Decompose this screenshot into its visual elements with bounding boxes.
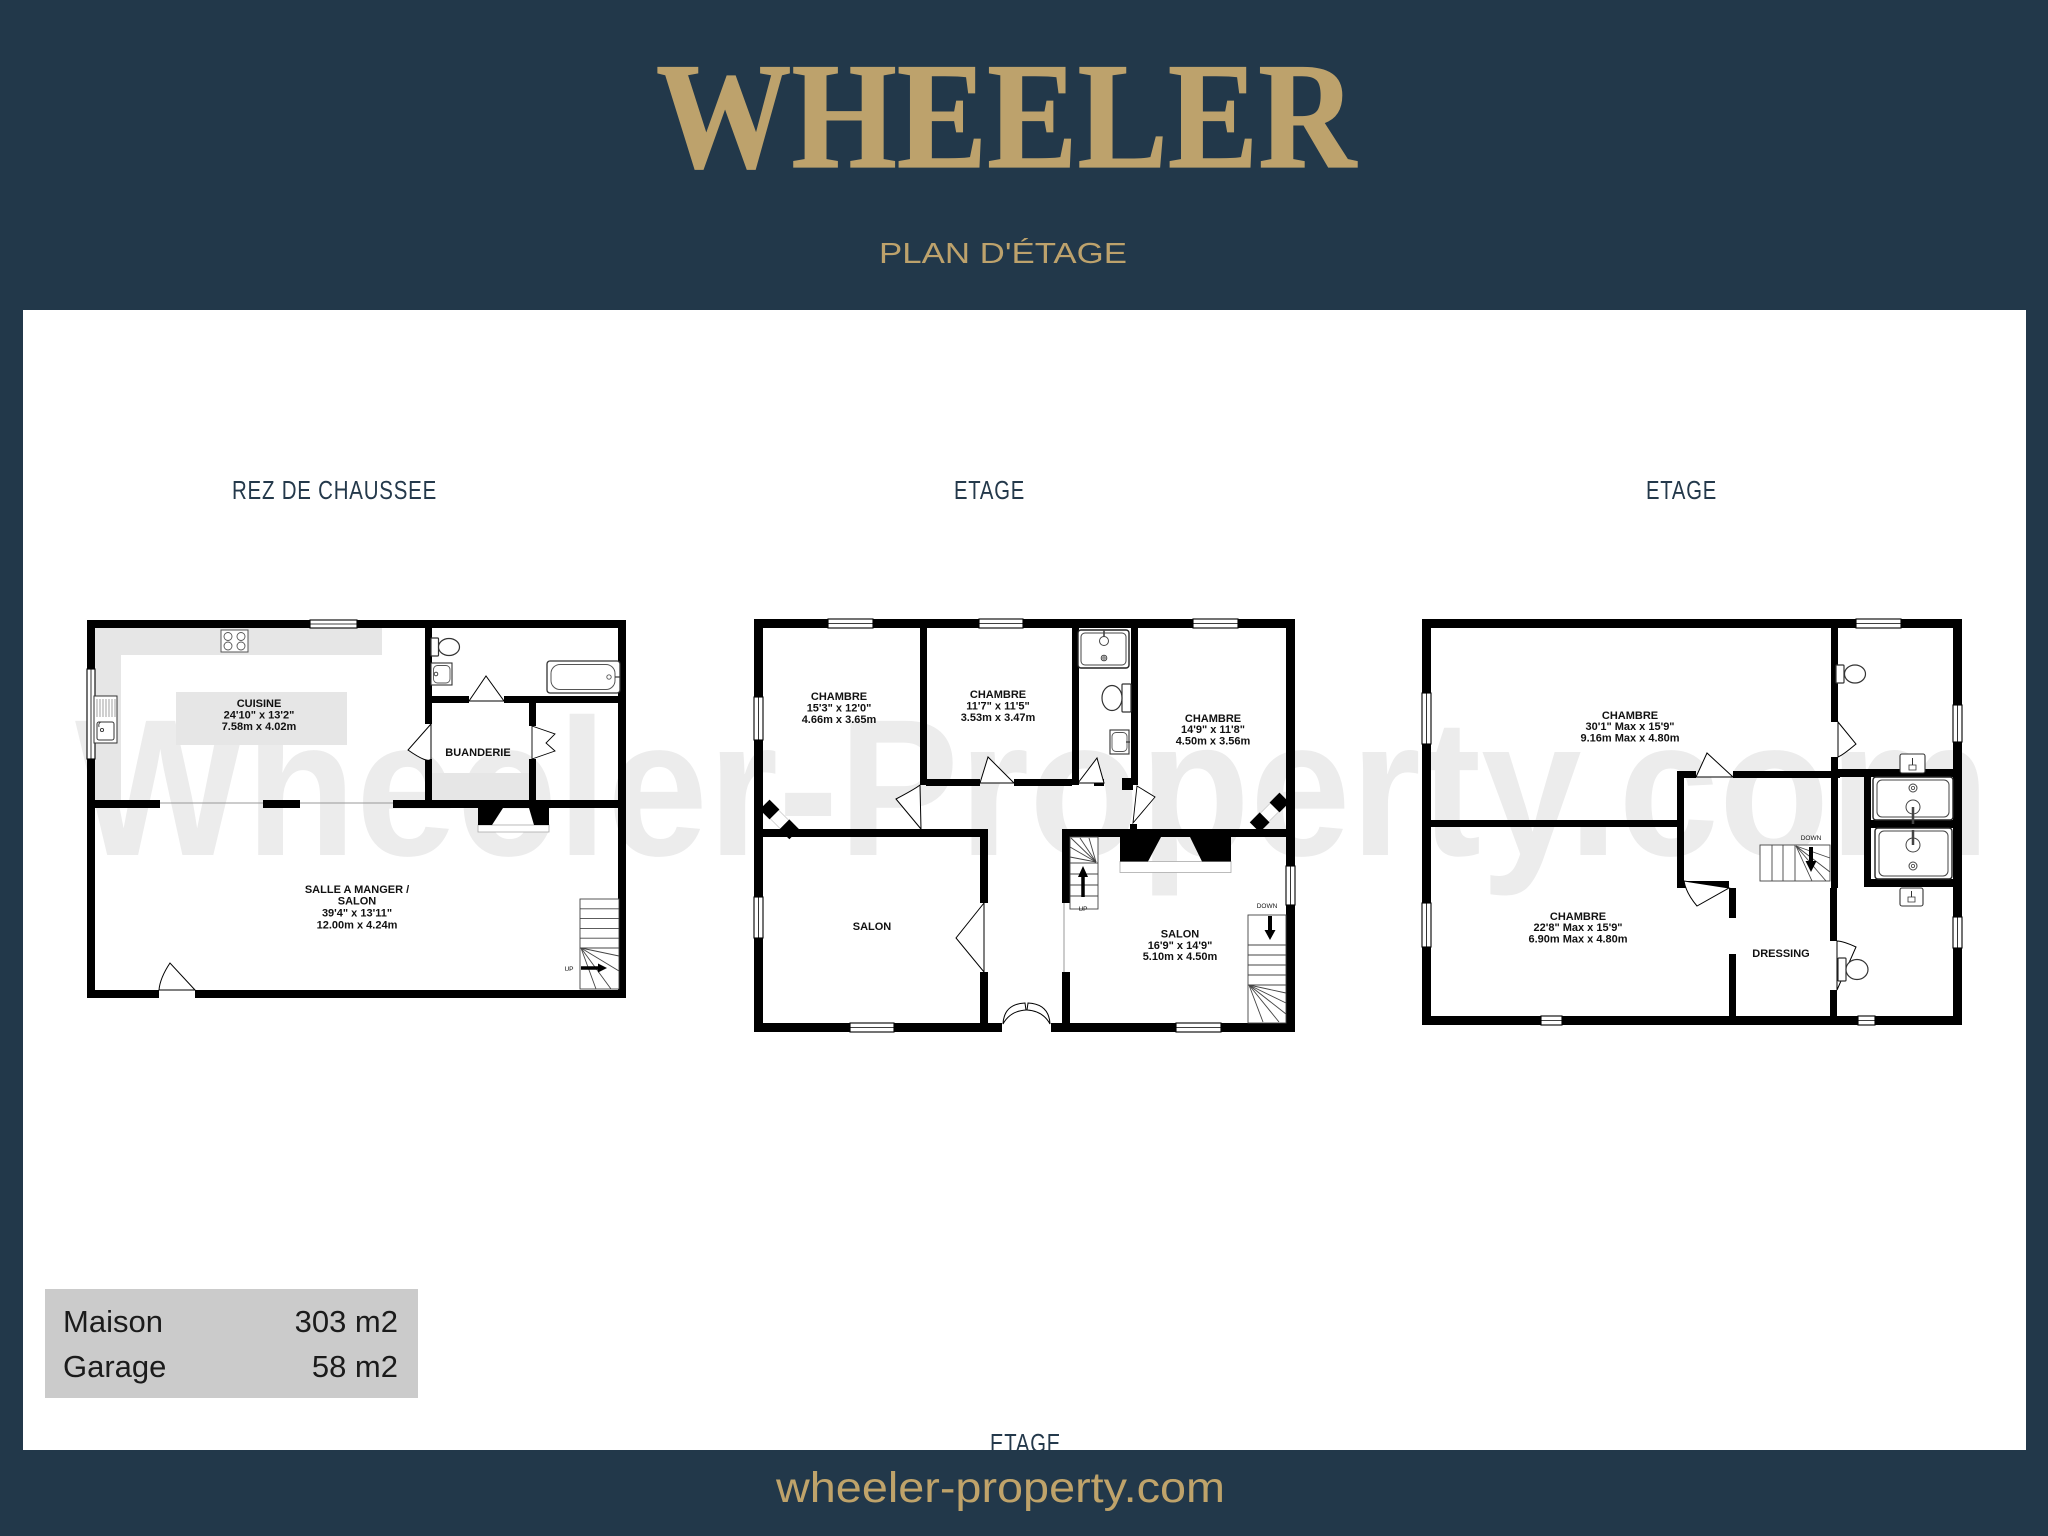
svg-text:24'10" x 13'2": 24'10" x 13'2"	[224, 710, 295, 722]
svg-text:7.58m x 4.02m: 7.58m x 4.02m	[222, 721, 297, 733]
svg-text:DRESSING: DRESSING	[1752, 948, 1809, 960]
svg-text:PLAN D'ÉTAGE: PLAN D'ÉTAGE	[879, 237, 1127, 270]
svg-text:15'3" x 12'0": 15'3" x 12'0"	[807, 703, 872, 715]
svg-text:ETAGE: ETAGE	[954, 475, 1025, 505]
svg-text:14'9" x 11'8": 14'9" x 11'8"	[1181, 724, 1245, 736]
svg-text:UP: UP	[564, 966, 573, 973]
svg-text:9.16m Max x 4.80m: 9.16m Max x 4.80m	[1580, 733, 1679, 745]
svg-text:SALON: SALON	[338, 896, 377, 908]
svg-text:58 m2: 58 m2	[312, 1349, 398, 1384]
svg-text:WHEELER: WHEELER	[656, 32, 1358, 200]
svg-text:BUANDERIE: BUANDERIE	[445, 747, 510, 759]
svg-text:22'8" Max x 15'9": 22'8" Max x 15'9"	[1533, 922, 1622, 934]
svg-text:SALLE A MANGER /: SALLE A MANGER /	[305, 884, 409, 896]
svg-text:DOWN: DOWN	[1801, 835, 1822, 842]
svg-text:12.00m x 4.24m: 12.00m x 4.24m	[317, 920, 398, 932]
svg-text:3.53m x 3.47m: 3.53m x 3.47m	[961, 712, 1036, 724]
svg-text:39'4" x 13'11": 39'4" x 13'11"	[322, 908, 392, 920]
svg-text:DOWN: DOWN	[1257, 903, 1278, 910]
svg-text:Maison: Maison	[63, 1304, 163, 1339]
svg-text:CHAMBRE: CHAMBRE	[970, 689, 1026, 701]
svg-text:SALON: SALON	[1161, 929, 1200, 941]
svg-text:5.10m x 4.50m: 5.10m x 4.50m	[1143, 951, 1218, 963]
svg-text:30'1" Max x 15'9": 30'1" Max x 15'9"	[1585, 721, 1674, 733]
svg-text:11'7" x 11'5": 11'7" x 11'5"	[966, 701, 1029, 713]
svg-text:4.66m x 3.65m: 4.66m x 3.65m	[802, 714, 877, 726]
svg-text:4.50m x 3.56m: 4.50m x 3.56m	[1176, 736, 1251, 748]
svg-text:SALON: SALON	[853, 921, 892, 933]
svg-text:UP: UP	[1078, 906, 1087, 913]
svg-text:CUISINE: CUISINE	[237, 698, 282, 710]
svg-text:Garage: Garage	[63, 1349, 166, 1384]
svg-text:REZ DE CHAUSSEE: REZ DE CHAUSSEE	[232, 475, 437, 505]
svg-text:303 m2: 303 m2	[295, 1304, 398, 1339]
svg-text:6.90m Max x 4.80m: 6.90m Max x 4.80m	[1528, 934, 1627, 946]
svg-text:ETAGE: ETAGE	[1646, 475, 1717, 505]
svg-text:CHAMBRE: CHAMBRE	[811, 691, 867, 703]
svg-text:wheeler-property.com: wheeler-property.com	[775, 1464, 1225, 1512]
